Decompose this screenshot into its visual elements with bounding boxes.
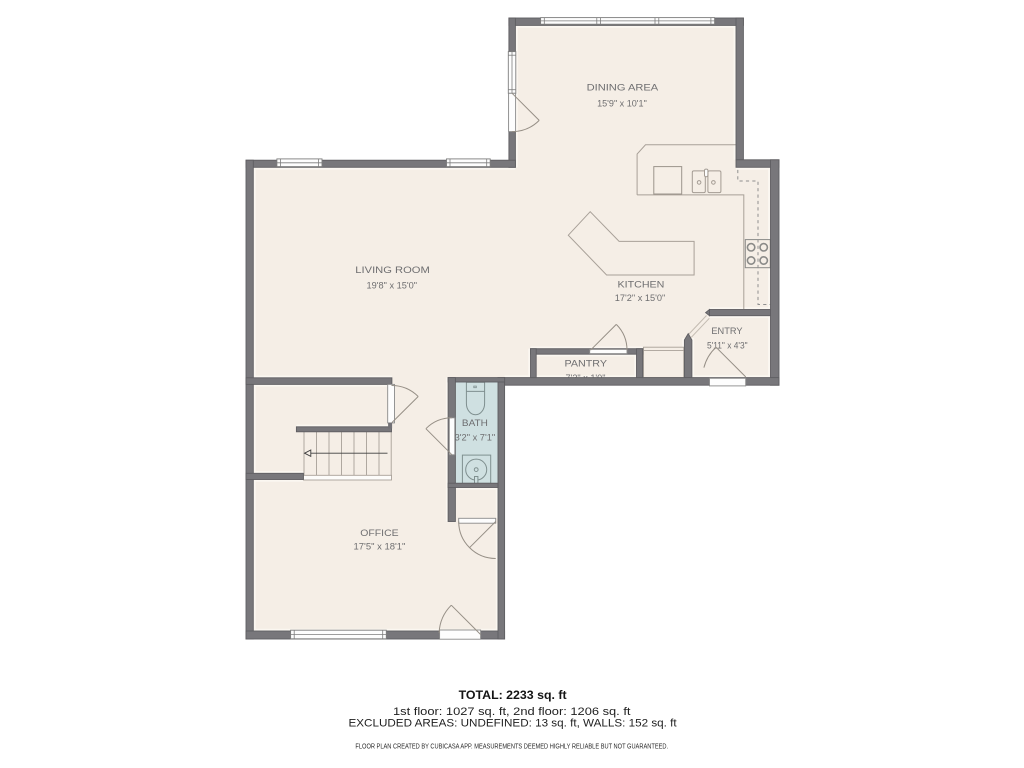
svg-text:PANTRY: PANTRY [565,359,608,370]
svg-text:19'8" x 15'0": 19'8" x 15'0" [367,279,418,290]
svg-text:FLOOR PLAN CREATED BY CUBICASA: FLOOR PLAN CREATED BY CUBICASA APP. MEAS… [355,741,668,750]
svg-text:17'5" x 18'1": 17'5" x 18'1" [354,541,406,552]
svg-text:15'9" x 10'1": 15'9" x 10'1" [597,98,647,109]
svg-text:KITCHEN: KITCHEN [618,279,665,290]
svg-text:1st floor: 1027 sq. ft, 2nd fl: 1st floor: 1027 sq. ft, 2nd floor: 1206 … [393,706,632,718]
svg-text:OFFICE: OFFICE [360,528,398,539]
svg-text:5'11" x 4'3": 5'11" x 4'3" [707,339,748,350]
svg-text:TOTAL: 2233 sq. ft: TOTAL: 2233 sq. ft [459,688,567,702]
svg-text:3'2" x 7'1": 3'2" x 7'1" [455,432,496,443]
svg-text:BATH: BATH [462,418,488,429]
svg-text:17'2" x 15'0": 17'2" x 15'0" [615,292,666,303]
svg-text:LIVING ROOM: LIVING ROOM [355,265,430,276]
svg-text:EXCLUDED AREAS: UNDEFINED: 13: EXCLUDED AREAS: UNDEFINED: 13 sq. ft, WA… [349,717,678,729]
svg-text:ENTRY: ENTRY [711,326,743,337]
svg-text:DINING AREA: DINING AREA [587,83,659,94]
